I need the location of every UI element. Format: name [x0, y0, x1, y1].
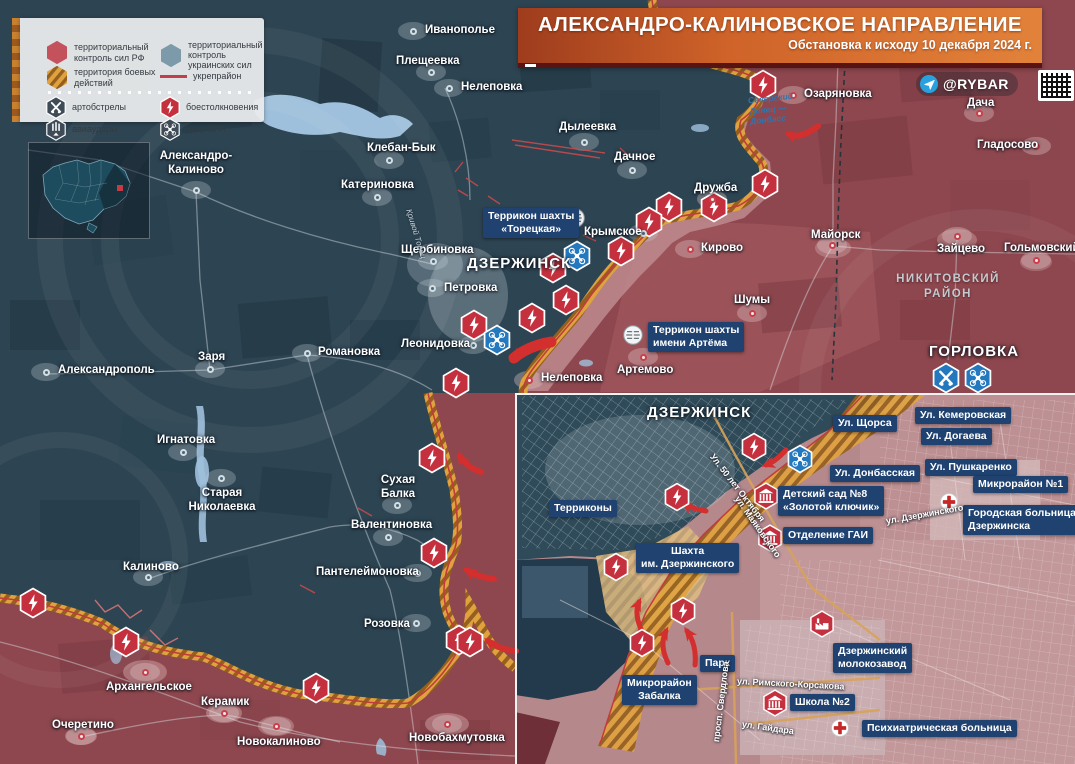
city-dot: [218, 475, 225, 482]
rybar-handle: @RYBAR: [943, 76, 1009, 92]
city-dot: [687, 246, 694, 253]
airstrikes-icon: [46, 118, 66, 141]
fortified-line-icon: [160, 75, 187, 78]
map-subtitle: Обстановка к исходу 10 декабря 2024 г.: [518, 38, 1032, 52]
city-dot: [142, 669, 149, 676]
city-label: Александро-Калиново: [160, 150, 233, 178]
city-label: Розовка: [364, 618, 410, 632]
city-label: Нелеповка: [541, 372, 602, 386]
city-label: Нелеповка: [461, 81, 522, 95]
legend-rf-control: территориальный контроль сил РФ: [46, 40, 166, 65]
inset-city-title: ДЗЕРЖИНСК: [647, 404, 751, 421]
city-label: СтараяНиколаевка: [188, 487, 255, 515]
district-label: НИКИТОВСКИЙРАЙОН: [896, 272, 1000, 302]
bigcity-label: ДЗЕРЖИНСК: [467, 255, 571, 272]
ukraine-minimap: [28, 142, 150, 239]
city-dot: [954, 233, 961, 240]
poi-box: Ул. Кемеровская: [915, 407, 1011, 424]
poi-box: Ул. Пушкаренко: [925, 459, 1017, 476]
legend-uav: удар БЛА: [160, 118, 226, 141]
qr-code: [1038, 70, 1074, 101]
city-dot: [413, 620, 420, 627]
situation-map: ИванопольеПлещеевкаНелеповкаДылеевкаДачн…: [0, 0, 1075, 764]
rf-control-icon: [46, 40, 68, 65]
city-dot: [428, 69, 435, 76]
artillery-icon: [46, 96, 66, 119]
city-dot: [410, 28, 417, 35]
poi-box: Ул. Щорса: [833, 415, 897, 432]
city-label: Керамик: [201, 696, 249, 710]
city-label: Дача: [967, 97, 994, 111]
bigcity-label: ГОРЛОВКА: [929, 343, 1019, 360]
poi-box: Ул. Догаева: [921, 428, 992, 445]
poi-box: Детский сад №8«Золотой ключик»: [778, 486, 884, 516]
city-label: Крымское: [584, 226, 642, 240]
city-dot: [304, 350, 311, 357]
city-label: Катериновка: [341, 179, 414, 193]
legend-fortified: укрепрайон: [160, 71, 241, 81]
city-dot: [1033, 257, 1040, 264]
city-label: Романовка: [318, 346, 380, 360]
street-label: ул. Гайдара: [741, 719, 794, 736]
city-label: Иванополье: [425, 24, 495, 38]
title-banner: АЛЕКСАНДРО-КАЛИНОВСКОЕ НАПРАВЛЕНИЕ Обста…: [518, 8, 1042, 68]
city-label: Александрополь: [58, 364, 155, 378]
city-label: Валентиновка: [351, 519, 432, 533]
city-dot: [207, 366, 214, 373]
city-label: Майорск: [811, 229, 860, 243]
city-label: Калиново: [123, 561, 179, 575]
city-dot: [629, 167, 636, 174]
legend-airstrikes: авиаудары: [46, 118, 118, 141]
city-label: Гладосово: [977, 139, 1038, 153]
city-dot: [444, 721, 451, 728]
city-label: Шумы: [734, 294, 770, 308]
city-dot: [829, 242, 836, 249]
poi-box: Школа №2: [790, 694, 855, 711]
map-title: АЛЕКСАНДРО-КАЛИНОВСКОЕ НАПРАВЛЕНИЕ: [524, 13, 1036, 37]
city-label: Озаряновка: [804, 88, 872, 102]
legend-accent-bar: [12, 18, 20, 122]
poi-box: Дзержинскиймолокозавод: [833, 643, 912, 673]
poi-box: МикрорайонЗабалка: [622, 675, 697, 705]
combat-zone-icon: [46, 65, 68, 90]
poi-box: Ул. Донбасская: [830, 465, 920, 482]
city-dot: [470, 342, 477, 349]
city-dot: [193, 187, 200, 194]
street-label: ул. Маяковского: [733, 494, 783, 559]
city-label: Зайцево: [937, 243, 985, 257]
poi-box: Террикон шахтыимени Артёма: [648, 322, 744, 352]
street-label: просп. Свердлова: [711, 661, 731, 743]
city-label: Заря: [198, 351, 225, 365]
poi-box: Психиатрическая больница: [862, 720, 1017, 737]
city-label: Архангельское: [106, 681, 192, 695]
city-label: Леонидовка: [401, 338, 470, 352]
poi-box: Отделение ГАИ: [783, 527, 873, 544]
legend-panel: территориальный контроль сил РФ территор…: [20, 18, 264, 122]
city-label: Дылеевка: [559, 121, 616, 135]
city-dot: [640, 354, 647, 361]
minimap-region-marker: [117, 185, 123, 191]
city-dot: [429, 285, 436, 292]
city-dot: [180, 449, 187, 456]
city-label: Клебан-Бык: [367, 142, 436, 156]
banner-strip: [518, 63, 1042, 68]
poi-box: Терриконы: [549, 500, 617, 517]
poi-box: Микрорайон №1: [973, 476, 1068, 493]
clashes-icon: [160, 96, 180, 119]
city-dot: [446, 85, 453, 92]
poi-box: Террикон шахты«Торецкая»: [483, 208, 579, 238]
poi-box: Шахтаим. Дзержинского: [636, 543, 739, 573]
city-label: Дачное: [614, 151, 655, 165]
city-label: Новобахмутовка: [409, 732, 505, 746]
city-dot: [386, 157, 393, 164]
city-dot: [78, 733, 85, 740]
city-dot: [374, 194, 381, 201]
city-dot: [394, 502, 401, 509]
city-label: СухаяБалка: [381, 474, 415, 502]
legend-artillery: артобстрелы: [46, 96, 126, 119]
city-dot: [273, 723, 280, 730]
city-dot: [385, 534, 392, 541]
city-label: Плещеевка: [396, 55, 460, 69]
poi-box: Городская больницаДзержинска: [963, 505, 1075, 535]
city-label: Дружба: [694, 182, 737, 196]
city-dot: [221, 710, 228, 717]
legend-ua-control: территориальный контроль украинских сил: [160, 40, 268, 70]
ua-control-icon: [160, 43, 182, 68]
city-label: Кирово: [701, 242, 743, 256]
city-dot: [430, 258, 437, 265]
legend-separator: [48, 91, 252, 94]
canal-label: СеверскийДонец —Донбасс: [747, 91, 795, 127]
city-dot: [749, 310, 756, 317]
street-label: ул. Римского-Корсакова: [737, 676, 845, 692]
city-dot: [43, 369, 50, 376]
street-label: ул. Дзержинского: [885, 502, 964, 525]
city-label: Пантелеймоновка: [316, 566, 419, 580]
city-label: Щербиновка: [401, 244, 474, 258]
telegram-icon: [920, 75, 938, 93]
legend-clashes: боестолкновения: [160, 96, 258, 119]
city-dot: [709, 196, 716, 203]
city-label: Очеретино: [52, 719, 114, 733]
city-label: Артемово: [617, 364, 673, 378]
city-label: Петровка: [444, 282, 497, 296]
street-label: Ул. 50 лет Октября: [708, 452, 767, 524]
city-label: Новокалиново: [237, 736, 321, 750]
city-dot: [581, 139, 588, 146]
rybar-badge: @RYBAR: [916, 72, 1018, 96]
city-dot: [976, 110, 983, 117]
city-label: Игнатовка: [157, 434, 215, 448]
city-dot: [526, 377, 533, 384]
city-dot: [145, 574, 152, 581]
uav-icon: [160, 118, 180, 141]
legend-combat-zone: территория боевых действий: [46, 65, 166, 90]
city-label: Гольмовский: [1004, 242, 1075, 256]
